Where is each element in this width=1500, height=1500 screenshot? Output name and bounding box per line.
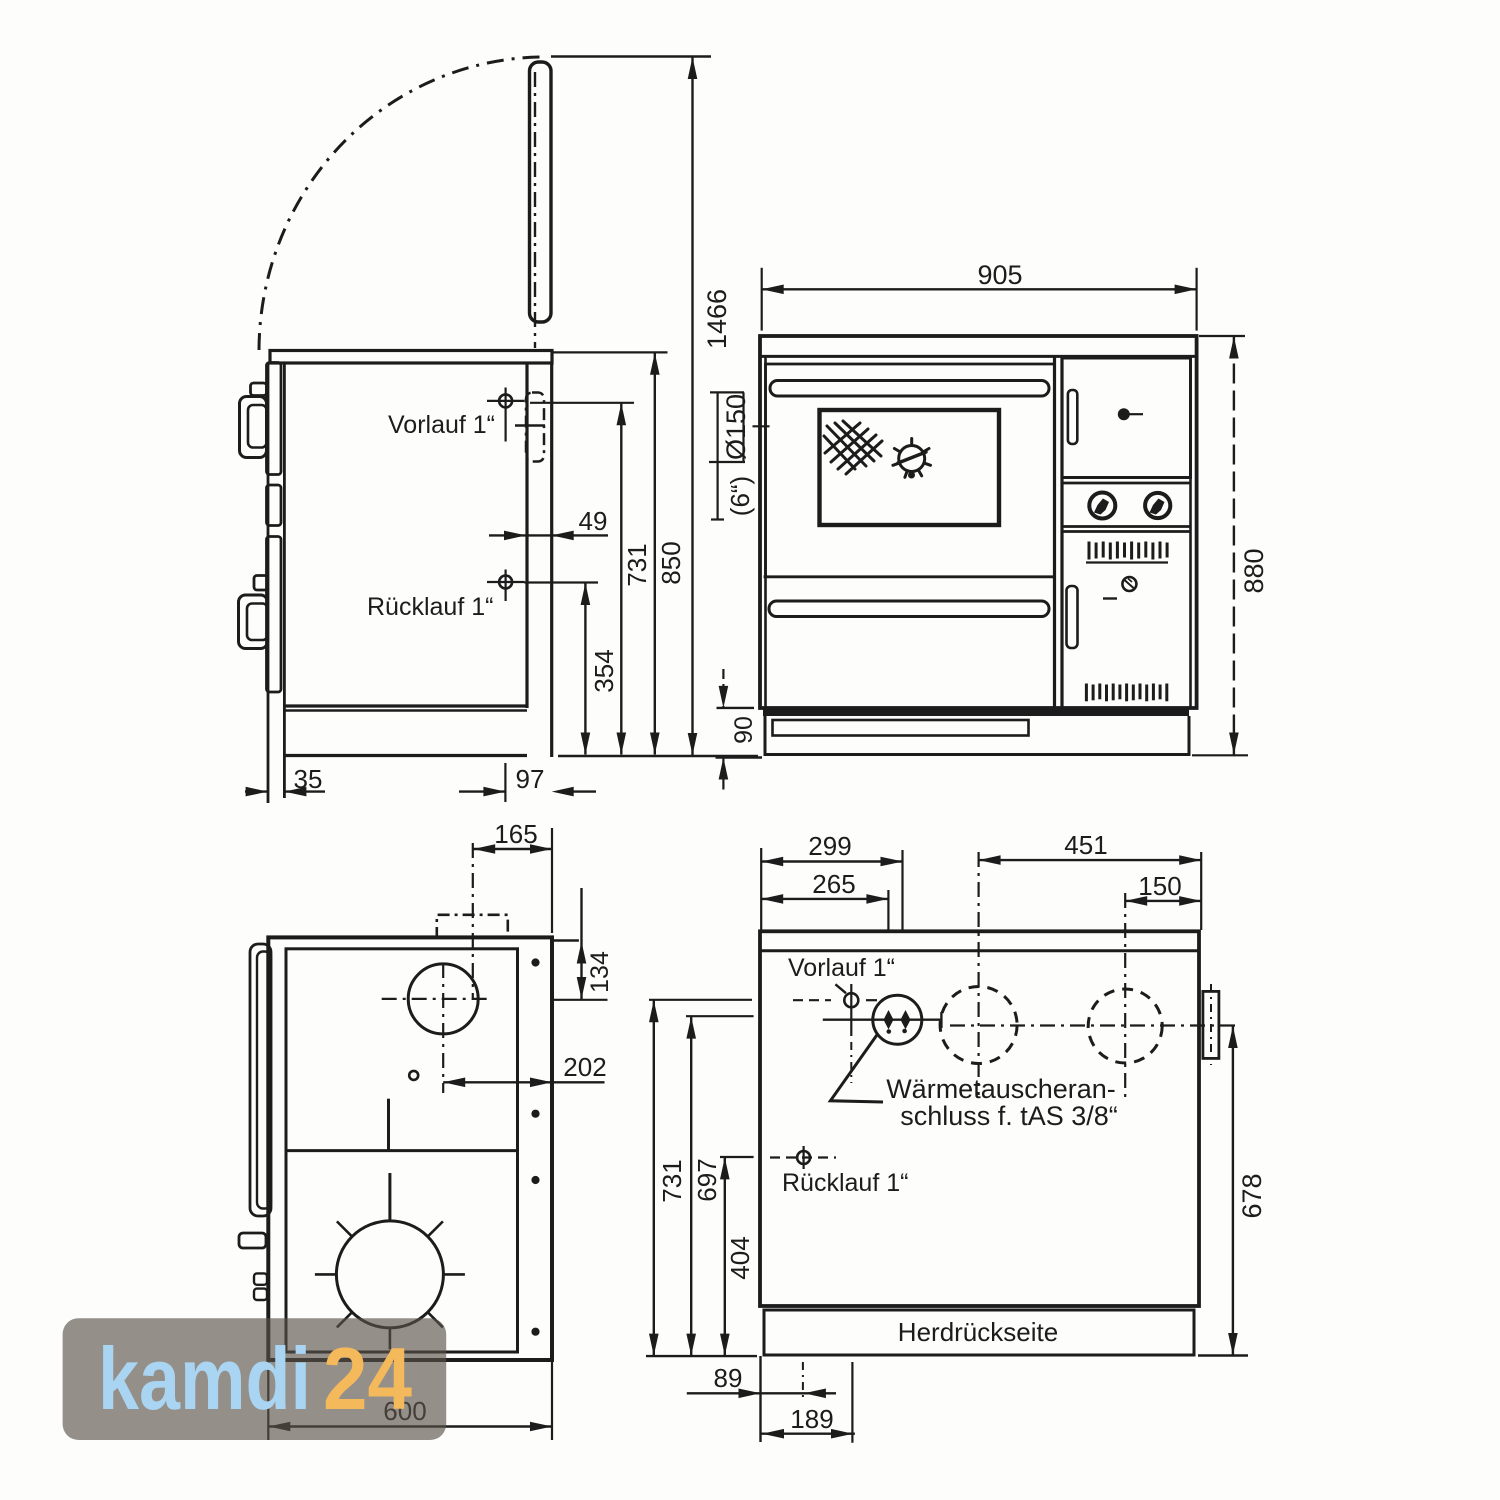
svg-text:354: 354 (589, 649, 619, 692)
svg-text:Vorlauf 1“: Vorlauf 1“ (788, 954, 895, 982)
svg-text:697: 697 (692, 1158, 722, 1201)
svg-text:49: 49 (579, 506, 608, 536)
svg-text:850: 850 (656, 541, 686, 584)
svg-text:202: 202 (563, 1052, 606, 1082)
svg-text:134: 134 (586, 951, 614, 993)
svg-text:Ø150: Ø150 (721, 394, 751, 460)
svg-text:265: 265 (812, 869, 855, 899)
svg-text:451: 451 (1064, 830, 1107, 860)
svg-text:90: 90 (730, 716, 758, 744)
svg-text:35: 35 (294, 764, 323, 794)
svg-text:(6“): (6“) (725, 476, 755, 516)
svg-text:Rücklauf 1“: Rücklauf 1“ (782, 1169, 908, 1197)
svg-text:165: 165 (494, 819, 537, 849)
svg-text:905: 905 (977, 260, 1022, 290)
svg-text:189: 189 (790, 1404, 833, 1434)
svg-text:Herdrückseite: Herdrückseite (898, 1317, 1058, 1347)
svg-text:678: 678 (1237, 1173, 1267, 1218)
svg-text:Wärmetauscheran-: Wärmetauscheran- (886, 1074, 1116, 1104)
svg-text:731: 731 (657, 1159, 687, 1202)
svg-text:299: 299 (808, 831, 851, 861)
svg-text:kamdi: kamdi (98, 1329, 311, 1428)
svg-text:24: 24 (323, 1329, 412, 1428)
svg-text:89: 89 (714, 1363, 743, 1393)
svg-text:404: 404 (725, 1236, 755, 1279)
svg-text:731: 731 (622, 543, 652, 586)
svg-text:Rücklauf 1“: Rücklauf 1“ (367, 593, 493, 621)
svg-text:150: 150 (1138, 871, 1181, 901)
svg-text:schluss f. tAS 3/8“: schluss f. tAS 3/8“ (900, 1101, 1118, 1131)
svg-text:880: 880 (1239, 548, 1269, 593)
svg-text:Vorlauf 1“: Vorlauf 1“ (388, 411, 495, 439)
svg-text:97: 97 (516, 764, 545, 794)
svg-text:1466: 1466 (702, 289, 732, 349)
